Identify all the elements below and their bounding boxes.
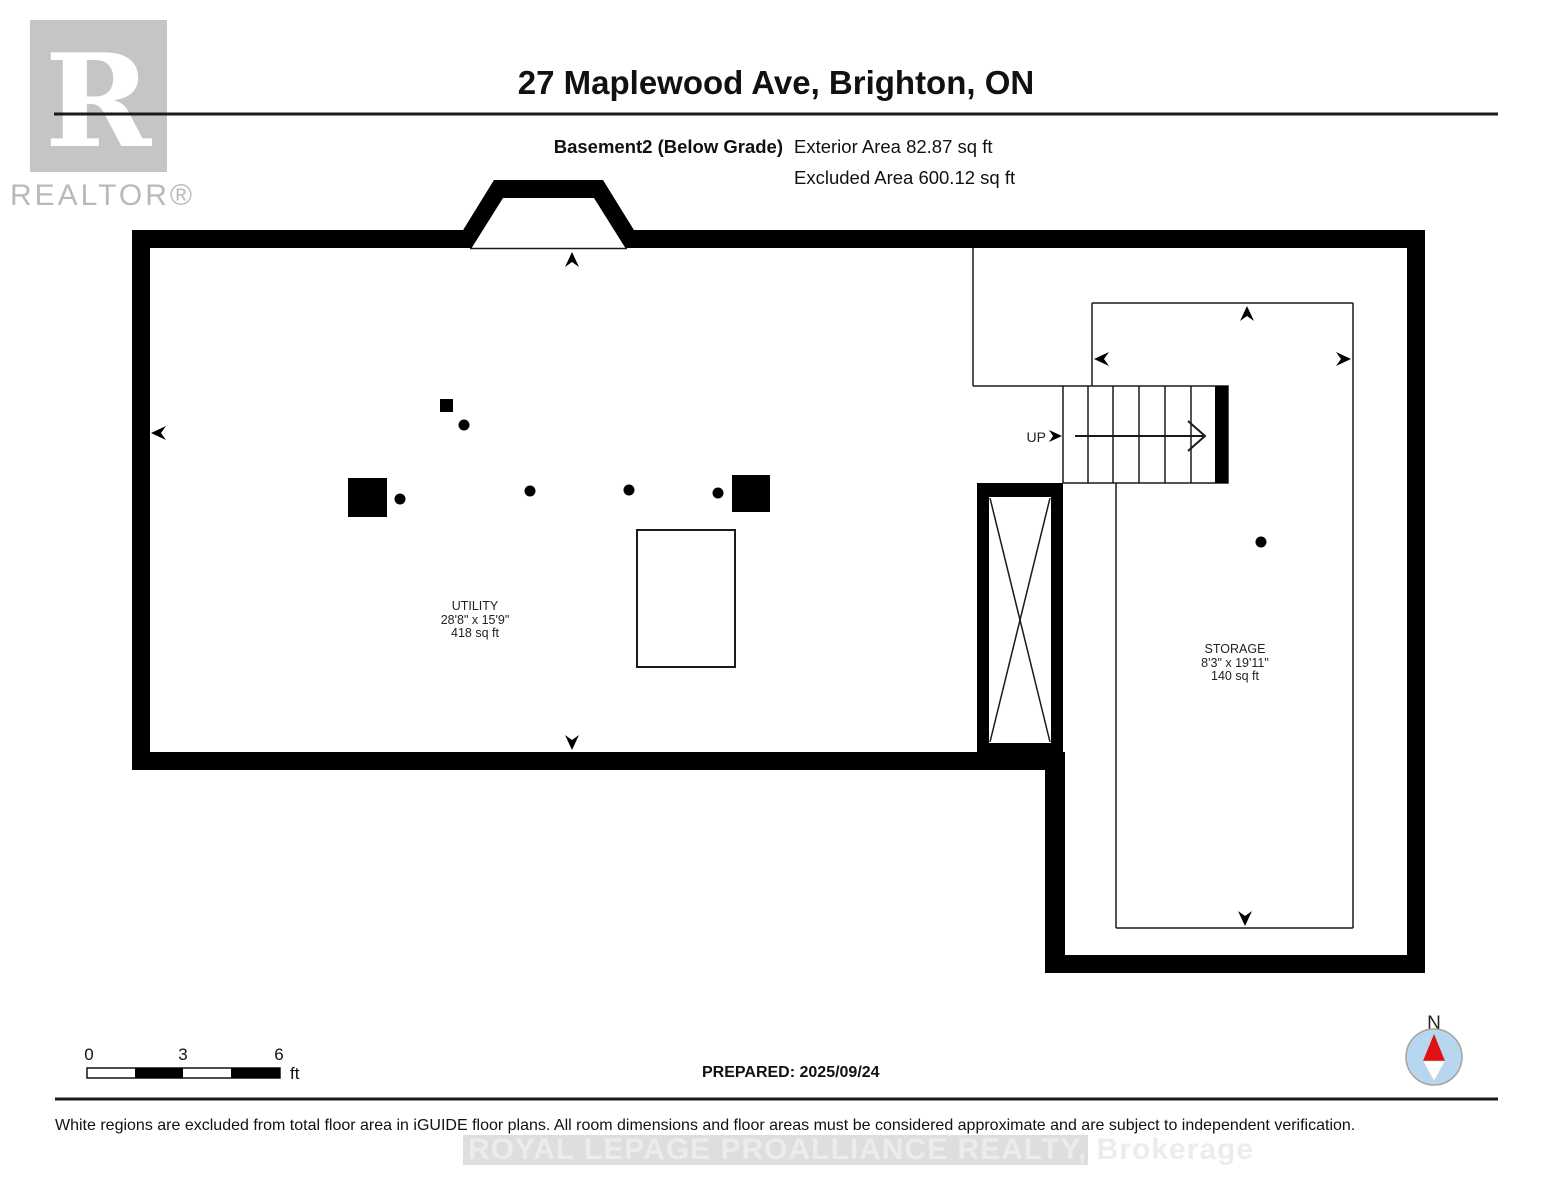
header: R REALTOR® 27 Maplewood Ave, Brighton, O… (10, 20, 1498, 212)
up-label: UP (1027, 429, 1046, 445)
wall-corner-vertical (1045, 752, 1065, 973)
up-arrow-icon (1049, 430, 1062, 442)
support-column-round (459, 420, 470, 431)
page-title: 27 Maplewood Ave, Brighton, ON (518, 64, 1034, 101)
prepared-date: PREPARED: 2025/09/24 (702, 1064, 880, 1081)
marker-up-icon (565, 252, 579, 267)
marker-down-icon (1238, 911, 1252, 926)
compass: N (1406, 1013, 1462, 1085)
realtor-logo-text: REALTOR® (10, 179, 195, 212)
scale-unit: ft (290, 1064, 300, 1083)
stair-top-edge (1215, 386, 1228, 483)
marker-left-icon (1094, 352, 1109, 366)
support-column-round (713, 488, 724, 499)
floor-label: Basement2 (Below Grade) (554, 136, 783, 157)
support-column-round (1256, 537, 1267, 548)
exterior-area-label: Exterior Area 82.87 sq ft (794, 136, 992, 157)
storage-room-label: STORAGE 8'3" x 19'11" 140 sq ft (1201, 642, 1269, 683)
marker-down-icon (565, 735, 579, 750)
scale-tick-0: 0 (84, 1045, 93, 1064)
room-area: 418 sq ft (451, 626, 499, 640)
staircase: UP (1027, 386, 1228, 483)
support-column-square (348, 478, 387, 517)
scale-tick-6: 6 (274, 1045, 283, 1064)
support-column-round (624, 485, 635, 496)
scale-bar-segment (231, 1068, 280, 1078)
scale-tick-3: 3 (178, 1045, 187, 1064)
room-area: 140 sq ft (1211, 669, 1259, 683)
room-dimensions: 8'3" x 19'11" (1201, 656, 1269, 670)
room-dimensions: 28'8" x 15'9" (441, 613, 510, 627)
marker-up-icon (1240, 306, 1254, 321)
floor-plan: UP UTILITY 28'8" x 15'9" (132, 180, 1425, 973)
support-column-round (525, 486, 536, 497)
floor-plan-page: R REALTOR® 27 Maplewood Ave, Brighton, O… (0, 0, 1553, 1200)
excluded-area-label: Excluded Area 600.12 sq ft (794, 167, 1015, 188)
scale-bar-segment (135, 1068, 183, 1078)
utility-room-label: UTILITY 28'8" x 15'9" 418 sq ft (441, 599, 510, 640)
wall-top (132, 230, 1425, 248)
support-column-square (732, 475, 770, 512)
room-name: UTILITY (452, 599, 499, 613)
disclaimer-text: White regions are excluded from total fl… (55, 1117, 1355, 1134)
dimension-markers (151, 252, 1351, 926)
equipment-outline (637, 530, 735, 667)
brokerage-watermark: ROYAL LEPAGE PROALLIANCE REALTY, Brokera… (463, 1133, 1254, 1166)
support-column-square-small (440, 399, 453, 412)
exterior-walls (132, 180, 1425, 973)
support-column-round (395, 494, 406, 505)
wall-left (132, 230, 150, 770)
wall-utility-bottom (132, 752, 1065, 770)
realtor-logo: R REALTOR® (10, 20, 195, 212)
chase-x-box (977, 483, 1063, 756)
watermark-text: ROYAL LEPAGE PROALLIANCE REALTY, Brokera… (468, 1133, 1254, 1166)
room-name: STORAGE (1205, 642, 1266, 656)
scale-bar: 0 3 6 ft (84, 1045, 299, 1083)
wall-right (1407, 230, 1425, 973)
wall-storage-bottom (1045, 955, 1425, 973)
marker-left-icon (151, 426, 166, 440)
realtor-logo-r: R (45, 27, 153, 177)
marker-right-icon (1336, 352, 1351, 366)
floor-plan-svg: R REALTOR® 27 Maplewood Ave, Brighton, O… (0, 0, 1553, 1200)
